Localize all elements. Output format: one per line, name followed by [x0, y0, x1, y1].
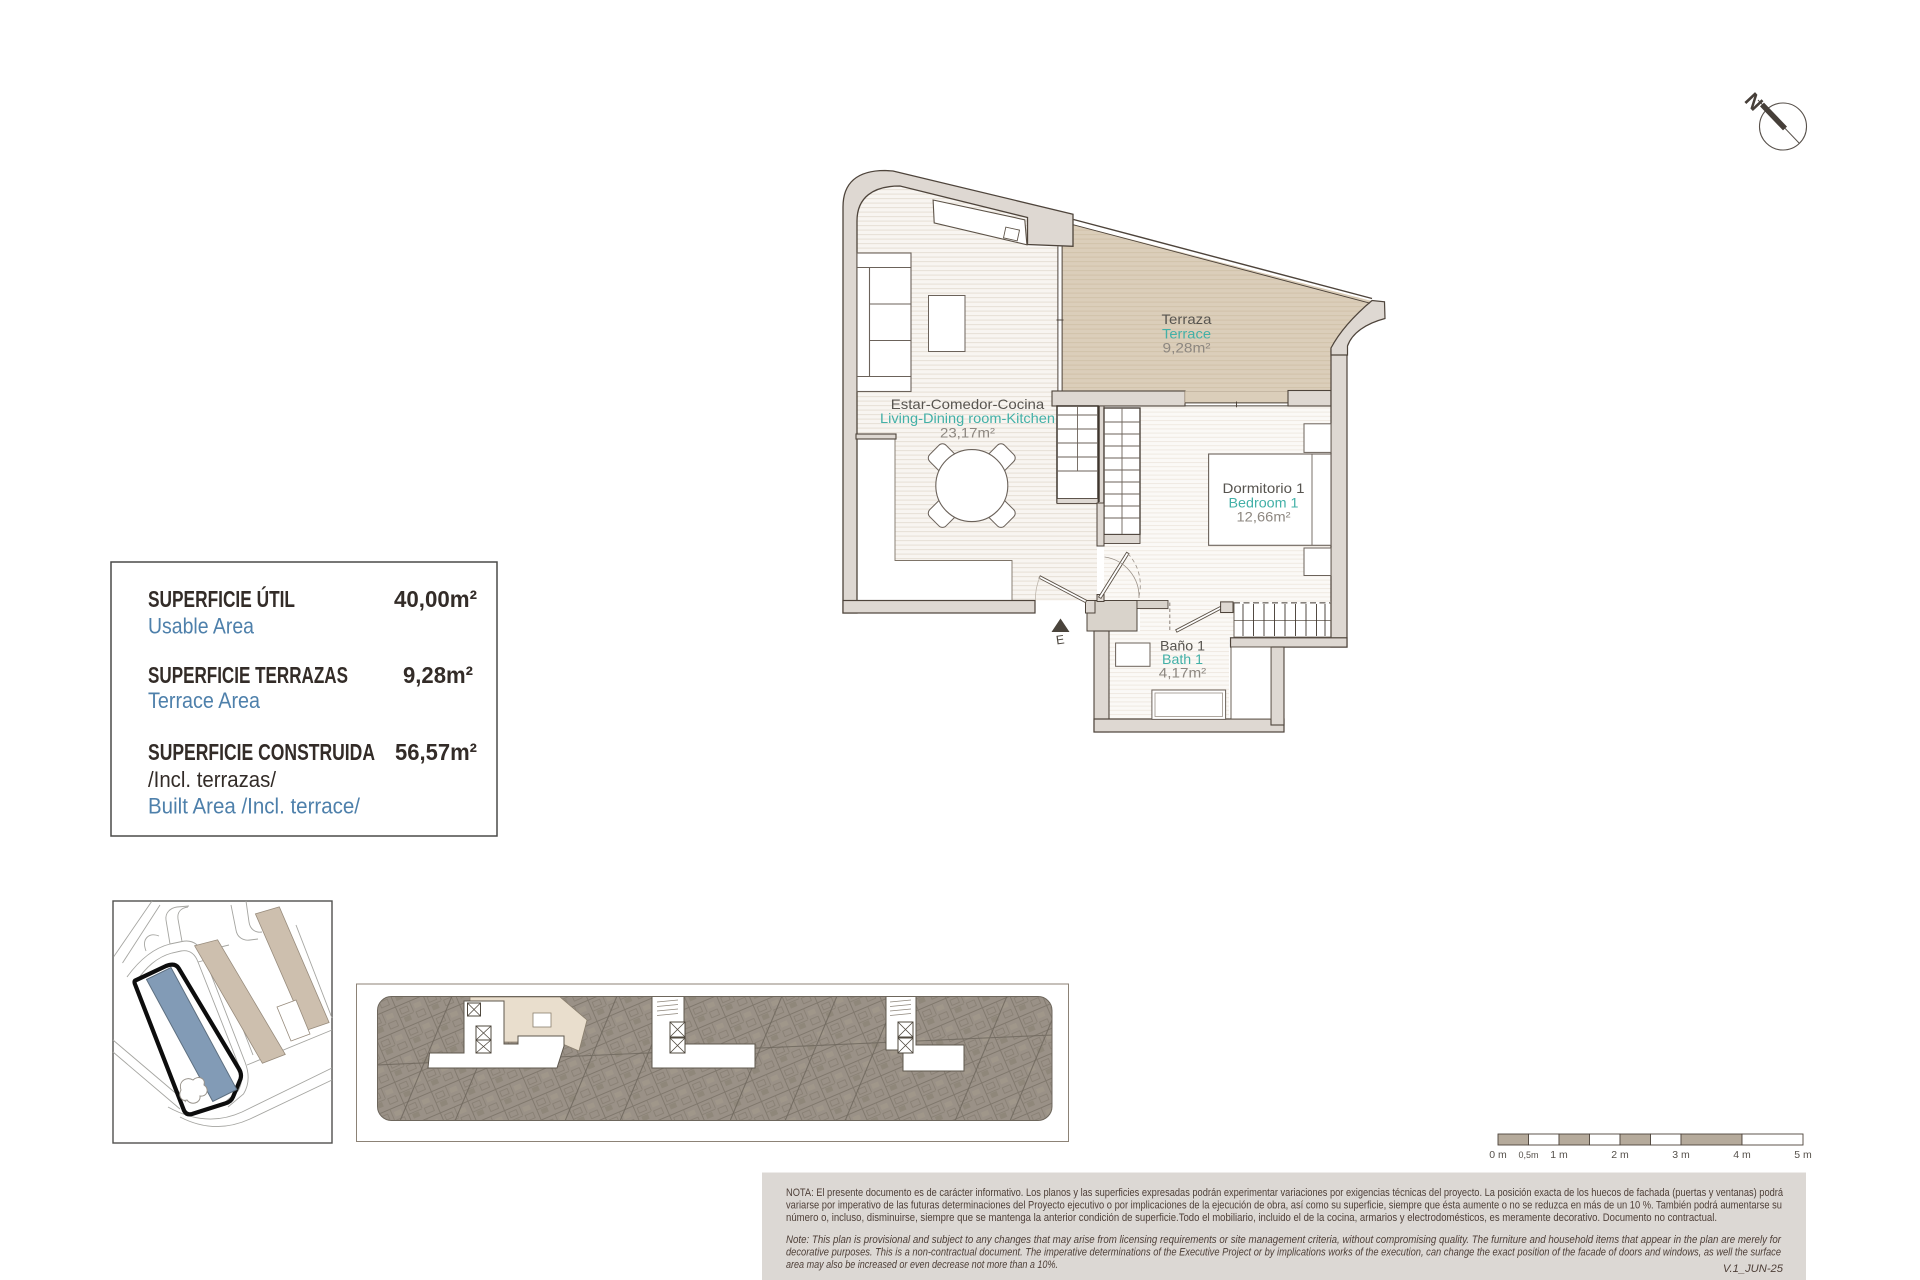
svg-text:Terraza: Terraza — [1162, 312, 1212, 327]
svg-text:Living-Dining room-Kitchen: Living-Dining room-Kitchen — [880, 411, 1055, 426]
svg-text:9,28m²: 9,28m² — [403, 662, 473, 688]
svg-text:1 m: 1 m — [1550, 1149, 1568, 1161]
svg-text:12,66m²: 12,66m² — [1237, 510, 1292, 525]
svg-text:NOTA: El presente documento e: NOTA: El presente documento es de caráct… — [786, 1187, 1784, 1199]
svg-text:Bedroom 1: Bedroom 1 — [1229, 495, 1299, 510]
svg-text:SUPERFICIE TERRAZAS: SUPERFICIE TERRAZAS — [148, 662, 348, 688]
svg-text:3 m: 3 m — [1672, 1149, 1690, 1161]
svg-text:4 m: 4 m — [1733, 1149, 1751, 1161]
svg-text:decorative purposes. This is a: decorative purposes. This is a non-contr… — [786, 1247, 1781, 1259]
svg-text:area may also be increased or: area may also be increased or even decre… — [786, 1259, 1058, 1271]
svg-text:Built Area /Incl. terrace/: Built Area /Incl. terrace/ — [148, 794, 361, 819]
svg-text:Estar-Comedor-Cocina: Estar-Comedor-Cocina — [891, 397, 1045, 412]
svg-text:5 m: 5 m — [1794, 1149, 1812, 1161]
svg-text:23,17m²: 23,17m² — [940, 426, 996, 441]
svg-text:Terrace: Terrace — [1162, 326, 1211, 341]
svg-text:variarse por imperativo de las: variarse por imperativo de las futuras d… — [786, 1200, 1782, 1212]
svg-text:Note: This plan is provisional: Note: This plan is provisional and subje… — [786, 1234, 1782, 1246]
svg-text:0 m: 0 m — [1489, 1149, 1507, 1161]
svg-text:4,17m²: 4,17m² — [1159, 666, 1207, 681]
svg-text:Usable Area: Usable Area — [148, 614, 255, 639]
svg-text:/Incl. terrazas/: /Incl. terrazas/ — [148, 767, 277, 792]
svg-text:SUPERFICIE CONSTRUIDA: SUPERFICIE CONSTRUIDA — [148, 739, 375, 765]
svg-text:Dormitorio 1: Dormitorio 1 — [1223, 481, 1305, 496]
svg-text:0,5m: 0,5m — [1518, 1150, 1538, 1160]
svg-text:SUPERFICIE ÚTIL: SUPERFICIE ÚTIL — [148, 585, 295, 612]
svg-text:V.1_JUN-25: V.1_JUN-25 — [1723, 1263, 1784, 1275]
svg-text:Terrace Area: Terrace Area — [148, 688, 261, 713]
svg-text:40,00m²: 40,00m² — [394, 586, 477, 612]
svg-text:9,28m²: 9,28m² — [1163, 341, 1212, 356]
svg-text:número o, incluso, disminuirse: número o, incluso, disminuirse, siempre … — [786, 1212, 1717, 1224]
svg-text:2 m: 2 m — [1611, 1149, 1629, 1161]
svg-text:56,57m²: 56,57m² — [395, 739, 477, 765]
